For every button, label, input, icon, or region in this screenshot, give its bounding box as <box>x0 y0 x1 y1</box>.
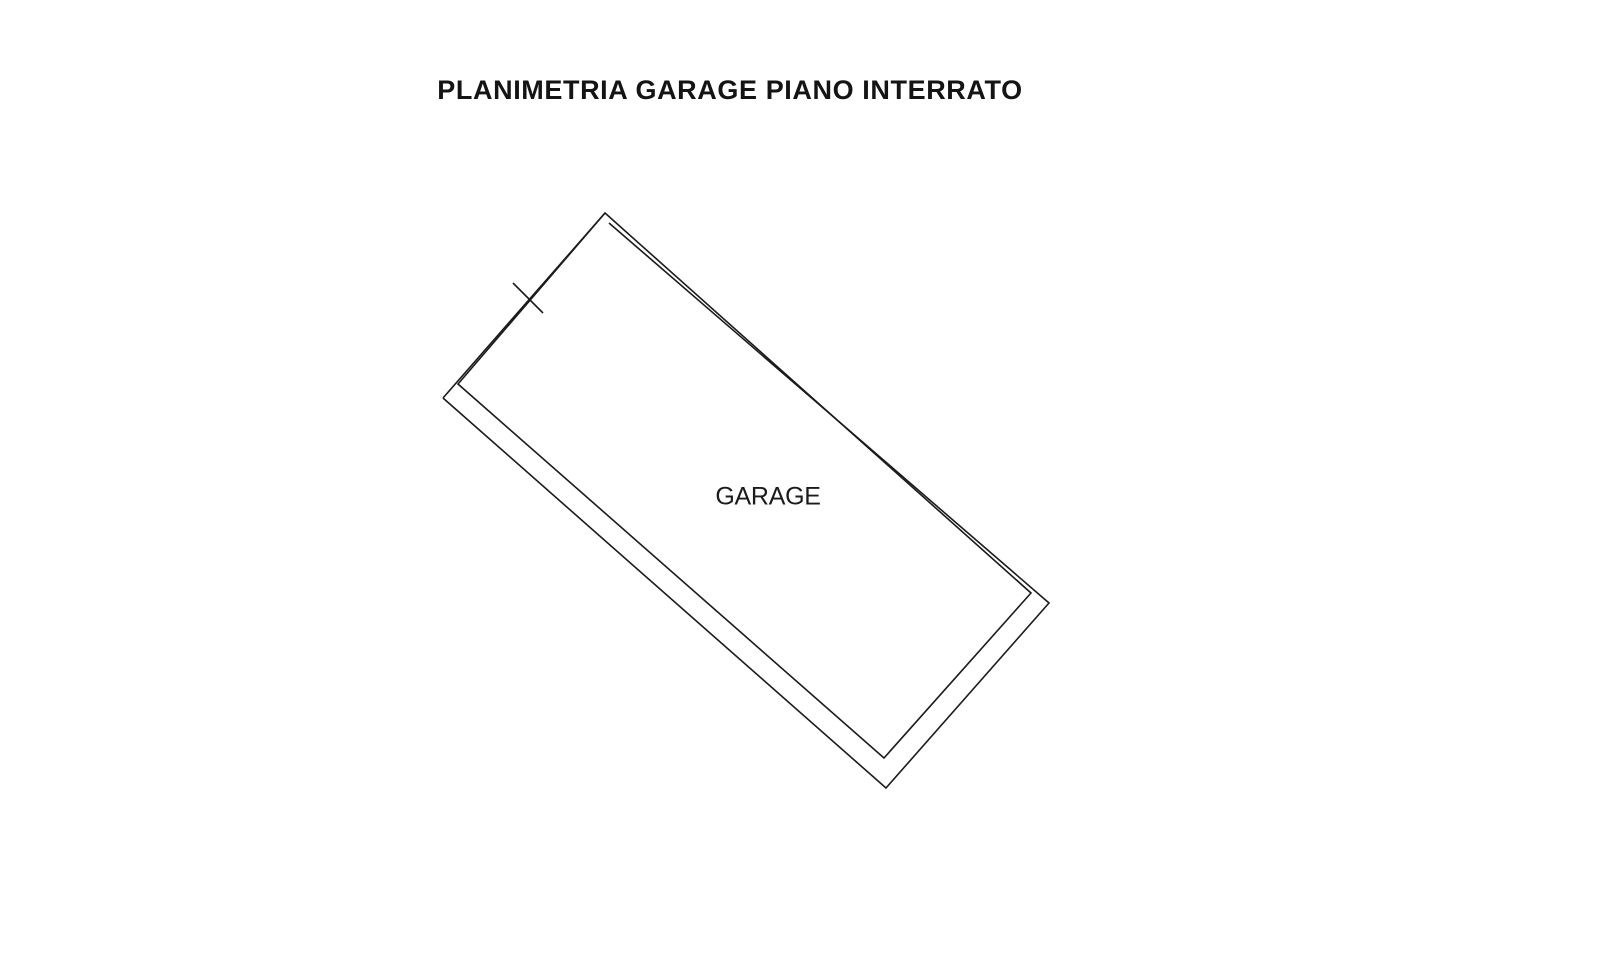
floorplan-page: PLANIMETRIA GARAGE PIANO INTERRATO GARAG… <box>0 0 1600 980</box>
garage-upper-left-wall <box>443 213 605 398</box>
room-label-garage: GARAGE <box>715 483 820 512</box>
boundary-tick-mark <box>513 283 543 313</box>
